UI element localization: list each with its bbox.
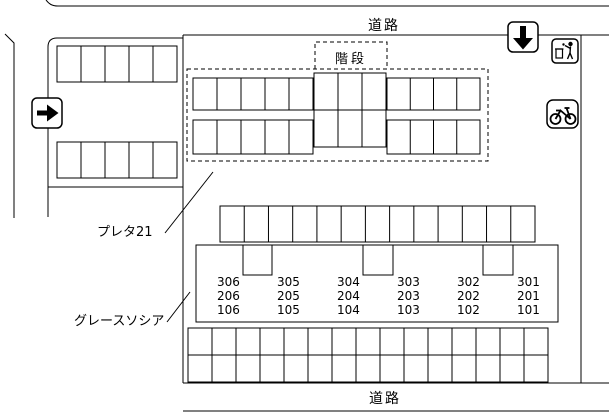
- leader-lines: [165, 172, 213, 322]
- site-map-linework: [0, 0, 609, 418]
- middle-parking-row: [220, 206, 535, 242]
- unit-number: 302: [457, 275, 517, 289]
- preta-building-label: プレタ21: [97, 221, 153, 240]
- grace-building-label: グレースソシア: [74, 310, 164, 329]
- grace-leader-line: [167, 292, 190, 322]
- unit-number: 106: [217, 303, 277, 317]
- garbage-station-icon: [552, 39, 578, 63]
- unit-number: 102: [457, 303, 517, 317]
- unit-number: 101: [517, 303, 577, 317]
- bottom-lot-grid: [188, 328, 548, 382]
- unit-number: 203: [397, 289, 457, 303]
- preta-center-block: [314, 73, 386, 147]
- bicycle-icon: [547, 100, 578, 128]
- preta-right-bottom-row: [387, 120, 480, 154]
- unit-number: 103: [397, 303, 457, 317]
- unit-number: 206: [217, 289, 277, 303]
- grace-stairwell-3: [483, 245, 513, 275]
- unit-number: 205: [277, 289, 337, 303]
- left-street-west-edge: [5, 34, 14, 218]
- preta-left-bottom-row: [193, 120, 313, 154]
- road-label-top: 道路: [368, 15, 400, 35]
- top-road-upper-edge: [46, 0, 609, 6]
- preta-leader-line: [165, 172, 213, 233]
- unit-number: 204: [337, 289, 397, 303]
- preta-left-top-row: [193, 78, 313, 110]
- stairs-label: 階段: [335, 48, 367, 67]
- unit-number: 306: [217, 275, 277, 289]
- parking-space-grids: [57, 46, 548, 382]
- left-lot-bottom-row: [57, 142, 177, 178]
- right-arrow-icon: [32, 98, 62, 128]
- unit-number: 105: [277, 303, 337, 317]
- down-arrow-icon: [508, 22, 538, 52]
- unit-number-grid: 306 305 304 303 302 301 206 205 204 203 …: [217, 275, 577, 317]
- unit-number: 305: [277, 275, 337, 289]
- unit-number: 202: [457, 289, 517, 303]
- unit-number: 304: [337, 275, 397, 289]
- left-lot-top-row: [57, 46, 177, 82]
- unit-number: 104: [337, 303, 397, 317]
- unit-number: 201: [517, 289, 577, 303]
- unit-number: 301: [517, 275, 577, 289]
- road-label-bottom: 道路: [369, 388, 401, 408]
- preta-right-top-row: [387, 78, 480, 110]
- grace-stairwell-1: [243, 245, 272, 275]
- unit-number: 303: [397, 275, 457, 289]
- grace-stairwell-2: [363, 245, 393, 275]
- left-lot-outline: [48, 38, 183, 217]
- site-map: 道路 道路 階段 プレタ21 グレースソシア 306 305 304 303 3…: [0, 0, 609, 418]
